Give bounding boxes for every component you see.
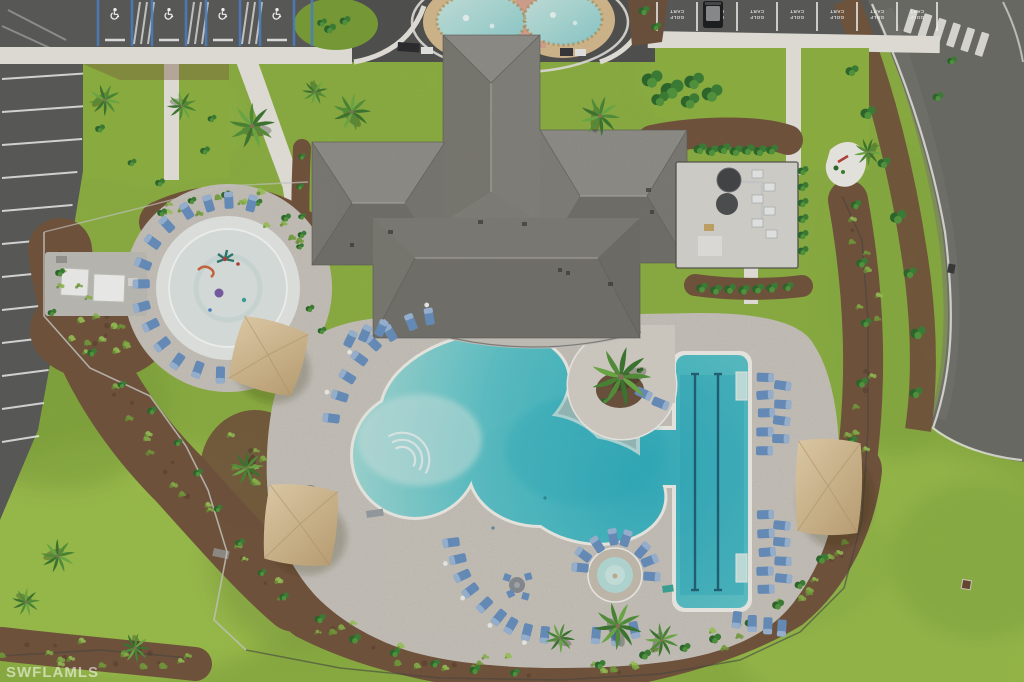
- aerial-scene: GOLFCARTGOLFCARTGOLFCARTGOLFCARTGOLFCART…: [0, 0, 1024, 682]
- mls-watermark: SWFLAMLS: [6, 664, 99, 681]
- aerial-photo-clubhouse-pool: GOLFCARTGOLFCARTGOLFCARTGOLFCARTGOLFCART…: [0, 0, 1024, 682]
- photo-grain: [0, 0, 1024, 682]
